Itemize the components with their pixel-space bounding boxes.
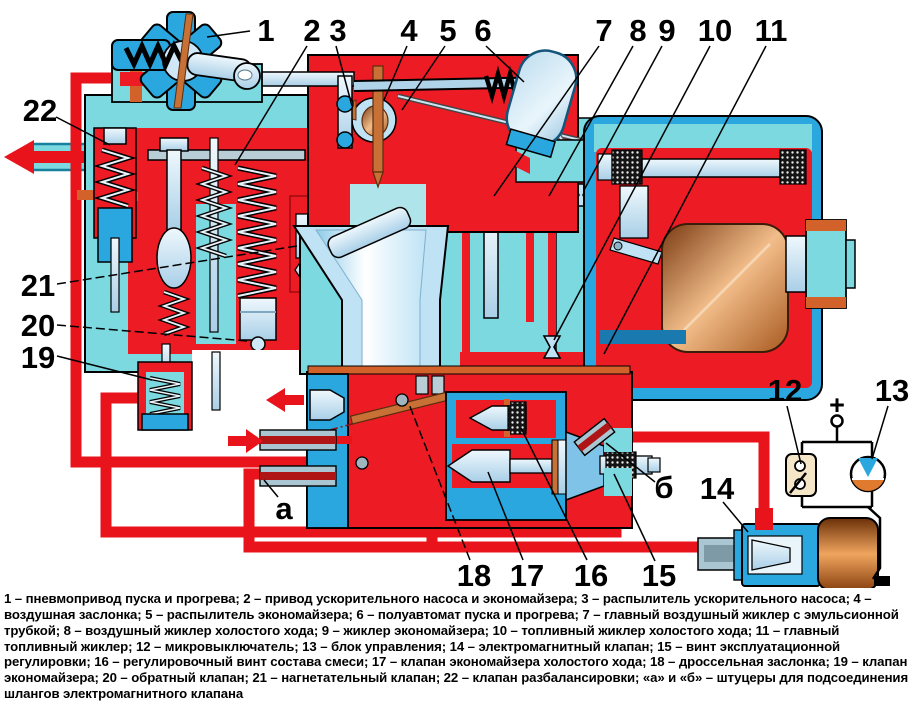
idle-outlet-plug	[310, 390, 344, 420]
callout-2: 2	[303, 13, 320, 48]
callout-5: 5	[439, 13, 456, 48]
carburetor-left-body	[77, 95, 330, 410]
legend-caption: 1 – пневмопривод пуска и прогрева; 2 – п…	[4, 591, 911, 702]
callout-line-13	[872, 406, 888, 459]
callout-17: 17	[510, 558, 544, 588]
callout-9: 9	[658, 13, 675, 48]
callout-14: 14	[700, 471, 735, 506]
callout-6: 6	[474, 13, 491, 48]
carburetor-schematic: 12345678910111213141516171819202122аб+ 1…	[0, 0, 915, 708]
callout-13: 13	[875, 373, 909, 408]
diagram-canvas: 12345678910111213141516171819202122аб+	[0, 0, 915, 588]
callout-16: 16	[574, 558, 608, 588]
callout-22: 22	[23, 93, 57, 128]
callout-8: 8	[629, 13, 646, 48]
callout-7: 7	[595, 13, 612, 48]
outlet-port	[806, 220, 855, 308]
callout-b: б	[654, 470, 673, 505]
callout-18: 18	[457, 558, 491, 588]
microswitch	[786, 454, 816, 496]
fitting-a	[260, 466, 336, 486]
throttle-body	[307, 366, 660, 528]
callout-3: 3	[329, 13, 346, 48]
callout-15: 15	[642, 558, 676, 588]
callout-4: 4	[400, 13, 418, 48]
callout-1: 1	[257, 13, 274, 48]
callout-line-14	[723, 502, 748, 532]
callout-19: 19	[21, 340, 55, 375]
callout-10: 10	[698, 13, 732, 48]
solenoid-coil	[818, 518, 878, 588]
check-ball	[251, 337, 265, 351]
control-unit	[851, 457, 885, 491]
callout-12: 12	[768, 373, 802, 408]
fitting-upper	[260, 430, 336, 450]
pneumatic-actuator	[112, 12, 262, 110]
callout-11: 11	[755, 13, 788, 48]
callout-21: 21	[21, 268, 55, 303]
solenoid-valve	[698, 508, 890, 588]
idle-out-arrow	[266, 388, 304, 412]
callout-plus: +	[829, 390, 845, 420]
float-chamber	[584, 116, 855, 400]
callout-a: а	[275, 491, 293, 526]
hose-in-arrow	[228, 429, 263, 453]
idle-pin	[212, 352, 220, 410]
callout-20: 20	[21, 308, 55, 343]
